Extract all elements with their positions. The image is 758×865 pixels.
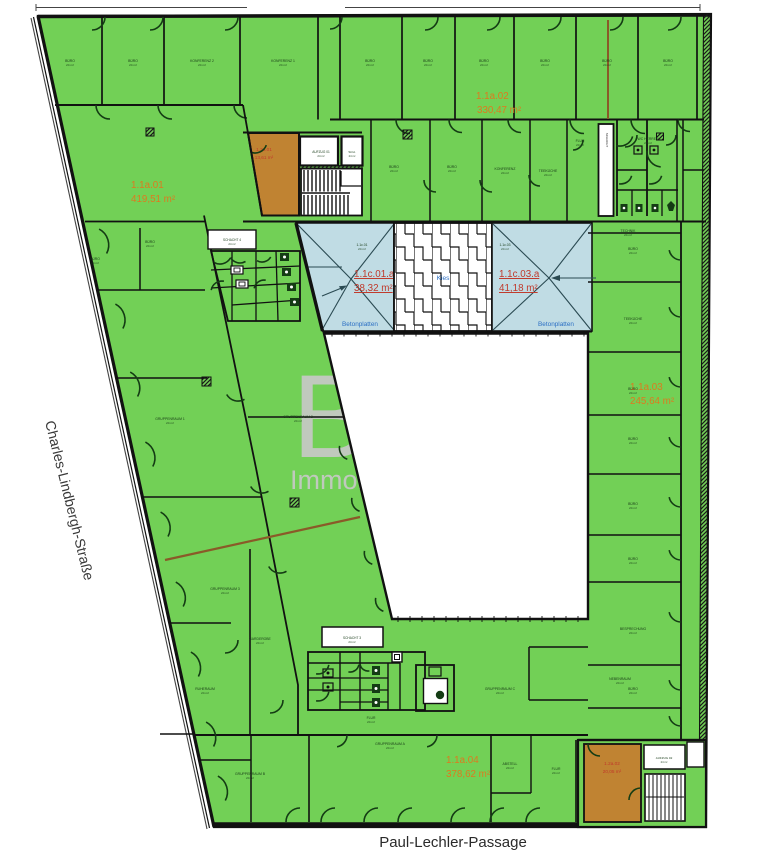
svg-text:245,64 m²: 245,64 m² <box>630 396 675 407</box>
svg-text:1.1c.03.a: 1.1c.03.a <box>499 269 540 280</box>
svg-text:24 m²: 24 m² <box>664 63 672 67</box>
svg-text:38,32 m²: 38,32 m² <box>354 283 393 294</box>
svg-text:24 m²: 24 m² <box>91 261 99 265</box>
svg-text:24 m²: 24 m² <box>424 63 432 67</box>
svg-text:1.1a.02: 1.1a.02 <box>476 91 509 102</box>
svg-text:24 m²: 24 m² <box>348 640 355 644</box>
svg-text:Charles-Lindbergh-Straße: Charles-Lindbergh-Straße <box>41 419 96 582</box>
svg-text:24 m²: 24 m² <box>198 63 206 67</box>
svg-text:24 m²: 24 m² <box>256 641 264 645</box>
svg-text:24 m²: 24 m² <box>501 171 509 175</box>
svg-text:24 m²: 24 m² <box>629 251 637 255</box>
svg-text:24 m²: 24 m² <box>644 141 652 145</box>
svg-text:24 m²: 24 m² <box>448 169 456 173</box>
svg-text:Kies: Kies <box>437 275 451 282</box>
svg-text:419,51 m²: 419,51 m² <box>131 194 176 205</box>
svg-text:AUFZUG 02: AUFZUG 02 <box>656 756 673 760</box>
svg-text:24 m²: 24 m² <box>246 776 254 780</box>
svg-text:24 m²: 24 m² <box>629 321 637 325</box>
svg-text:24 m²: 24 m² <box>541 63 549 67</box>
svg-text:330,47 m²: 330,47 m² <box>477 105 522 116</box>
svg-text:24 m²: 24 m² <box>506 766 514 770</box>
svg-text:24 m²: 24 m² <box>501 247 509 251</box>
svg-text:378,62 m²: 378,62 m² <box>446 769 491 780</box>
svg-text:24 m²: 24 m² <box>629 506 637 510</box>
svg-text:1.1c.01.a: 1.1c.01.a <box>354 269 395 280</box>
svg-text:1.2a.02: 1.2a.02 <box>604 761 620 766</box>
svg-text:41,18 m²: 41,18 m² <box>499 283 538 294</box>
svg-text:24 m²: 24 m² <box>129 63 137 67</box>
svg-text:Betonplatten: Betonplatten <box>538 321 574 328</box>
svg-text:24 m²: 24 m² <box>552 771 560 775</box>
svg-text:24 m²: 24 m² <box>629 631 637 635</box>
svg-text:24 m²: 24 m² <box>221 591 229 595</box>
svg-text:24 m²: 24 m² <box>629 691 637 695</box>
svg-text:24 m²: 24 m² <box>629 391 637 395</box>
svg-text:24 m²: 24 m² <box>496 691 504 695</box>
svg-text:24 m²: 24 m² <box>661 760 668 764</box>
svg-text:24 m²: 24 m² <box>603 63 611 67</box>
svg-text:24 m²: 24 m² <box>629 441 637 445</box>
svg-text:Paul-Lechler-Passage: Paul-Lechler-Passage <box>379 834 527 851</box>
svg-text:Betonplatten: Betonplatten <box>342 321 378 328</box>
svg-text:24 m²: 24 m² <box>480 63 488 67</box>
svg-text:24 m²: 24 m² <box>66 63 74 67</box>
svg-text:24 m²: 24 m² <box>294 419 302 423</box>
svg-text:13,61 m²: 13,61 m² <box>255 155 274 160</box>
svg-text:24 m²: 24 m² <box>201 691 209 695</box>
svg-text:24 m²: 24 m² <box>358 247 366 251</box>
svg-text:24 m²: 24 m² <box>390 169 398 173</box>
svg-text:24 m²: 24 m² <box>386 746 394 750</box>
svg-text:SCH.: SCH. <box>348 150 355 154</box>
svg-text:1.1a.04: 1.1a.04 <box>446 755 479 766</box>
svg-text:24 m²: 24 m² <box>367 720 375 724</box>
svg-text:24 m²: 24 m² <box>317 154 324 158</box>
svg-text:1.1a.01: 1.1a.01 <box>131 180 164 191</box>
svg-text:24 m²: 24 m² <box>544 173 552 177</box>
svg-text:24 m²: 24 m² <box>629 561 637 565</box>
svg-text:SCHACHT: SCHACHT <box>605 133 609 148</box>
svg-text:24 m²: 24 m² <box>576 143 584 147</box>
svg-text:24 m²: 24 m² <box>279 63 287 67</box>
svg-text:24 m²: 24 m² <box>616 681 624 685</box>
svg-text:24 m²: 24 m² <box>366 63 374 67</box>
svg-text:20,05 m²: 20,05 m² <box>603 769 622 774</box>
svg-text:24 m²: 24 m² <box>228 242 235 246</box>
svg-text:24 m²: 24 m² <box>349 154 356 158</box>
svg-text:24 m²: 24 m² <box>166 421 174 425</box>
svg-text:24 m²: 24 m² <box>146 244 154 248</box>
